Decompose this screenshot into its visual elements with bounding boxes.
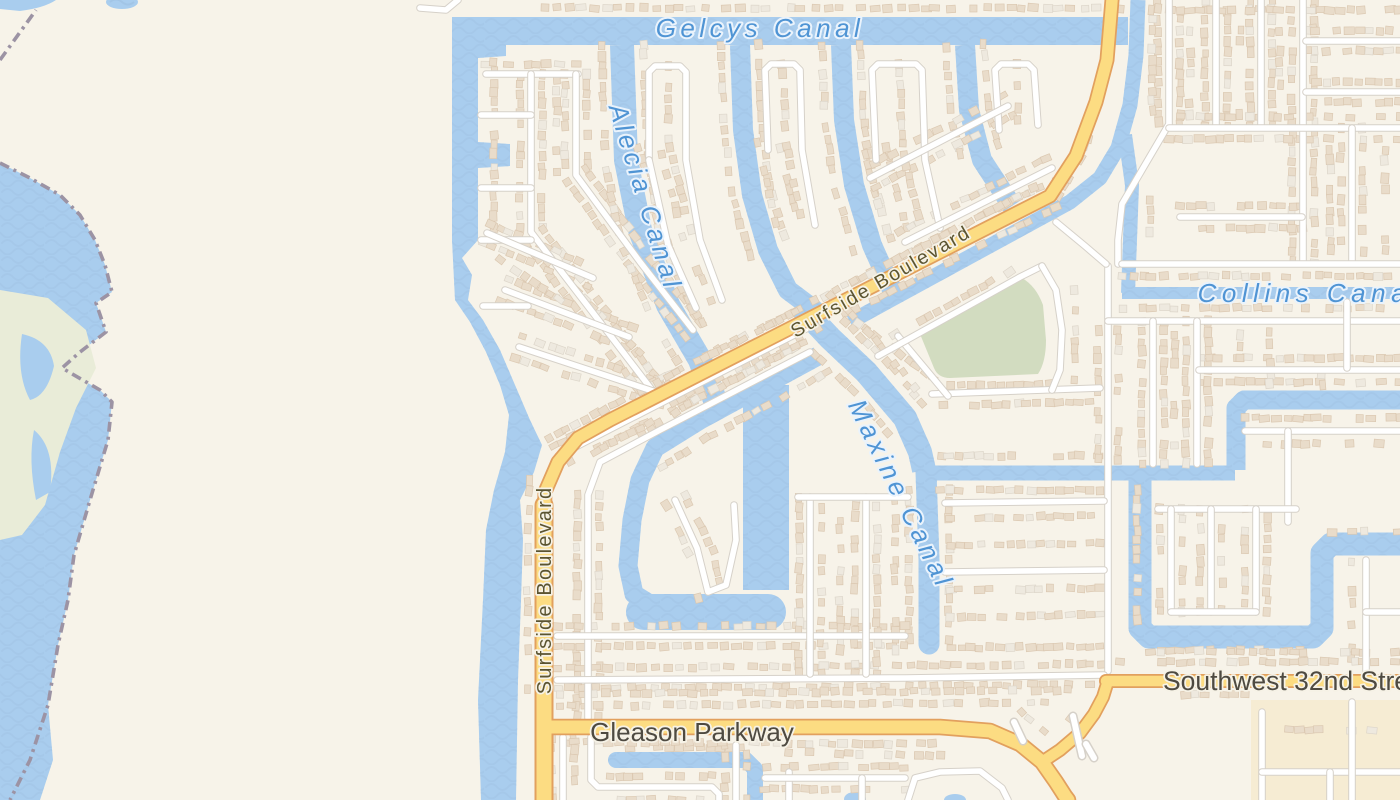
svg-text:Collins Canal: Collins Canal — [1198, 278, 1400, 308]
svg-text:Gleason Parkway: Gleason Parkway — [590, 717, 794, 747]
svg-text:Gelcys Canal: Gelcys Canal — [656, 13, 865, 43]
svg-text:Surfside Boulevard: Surfside Boulevard — [534, 486, 556, 695]
svg-text:Southwest 32nd Street: Southwest 32nd Street — [1163, 666, 1400, 696]
